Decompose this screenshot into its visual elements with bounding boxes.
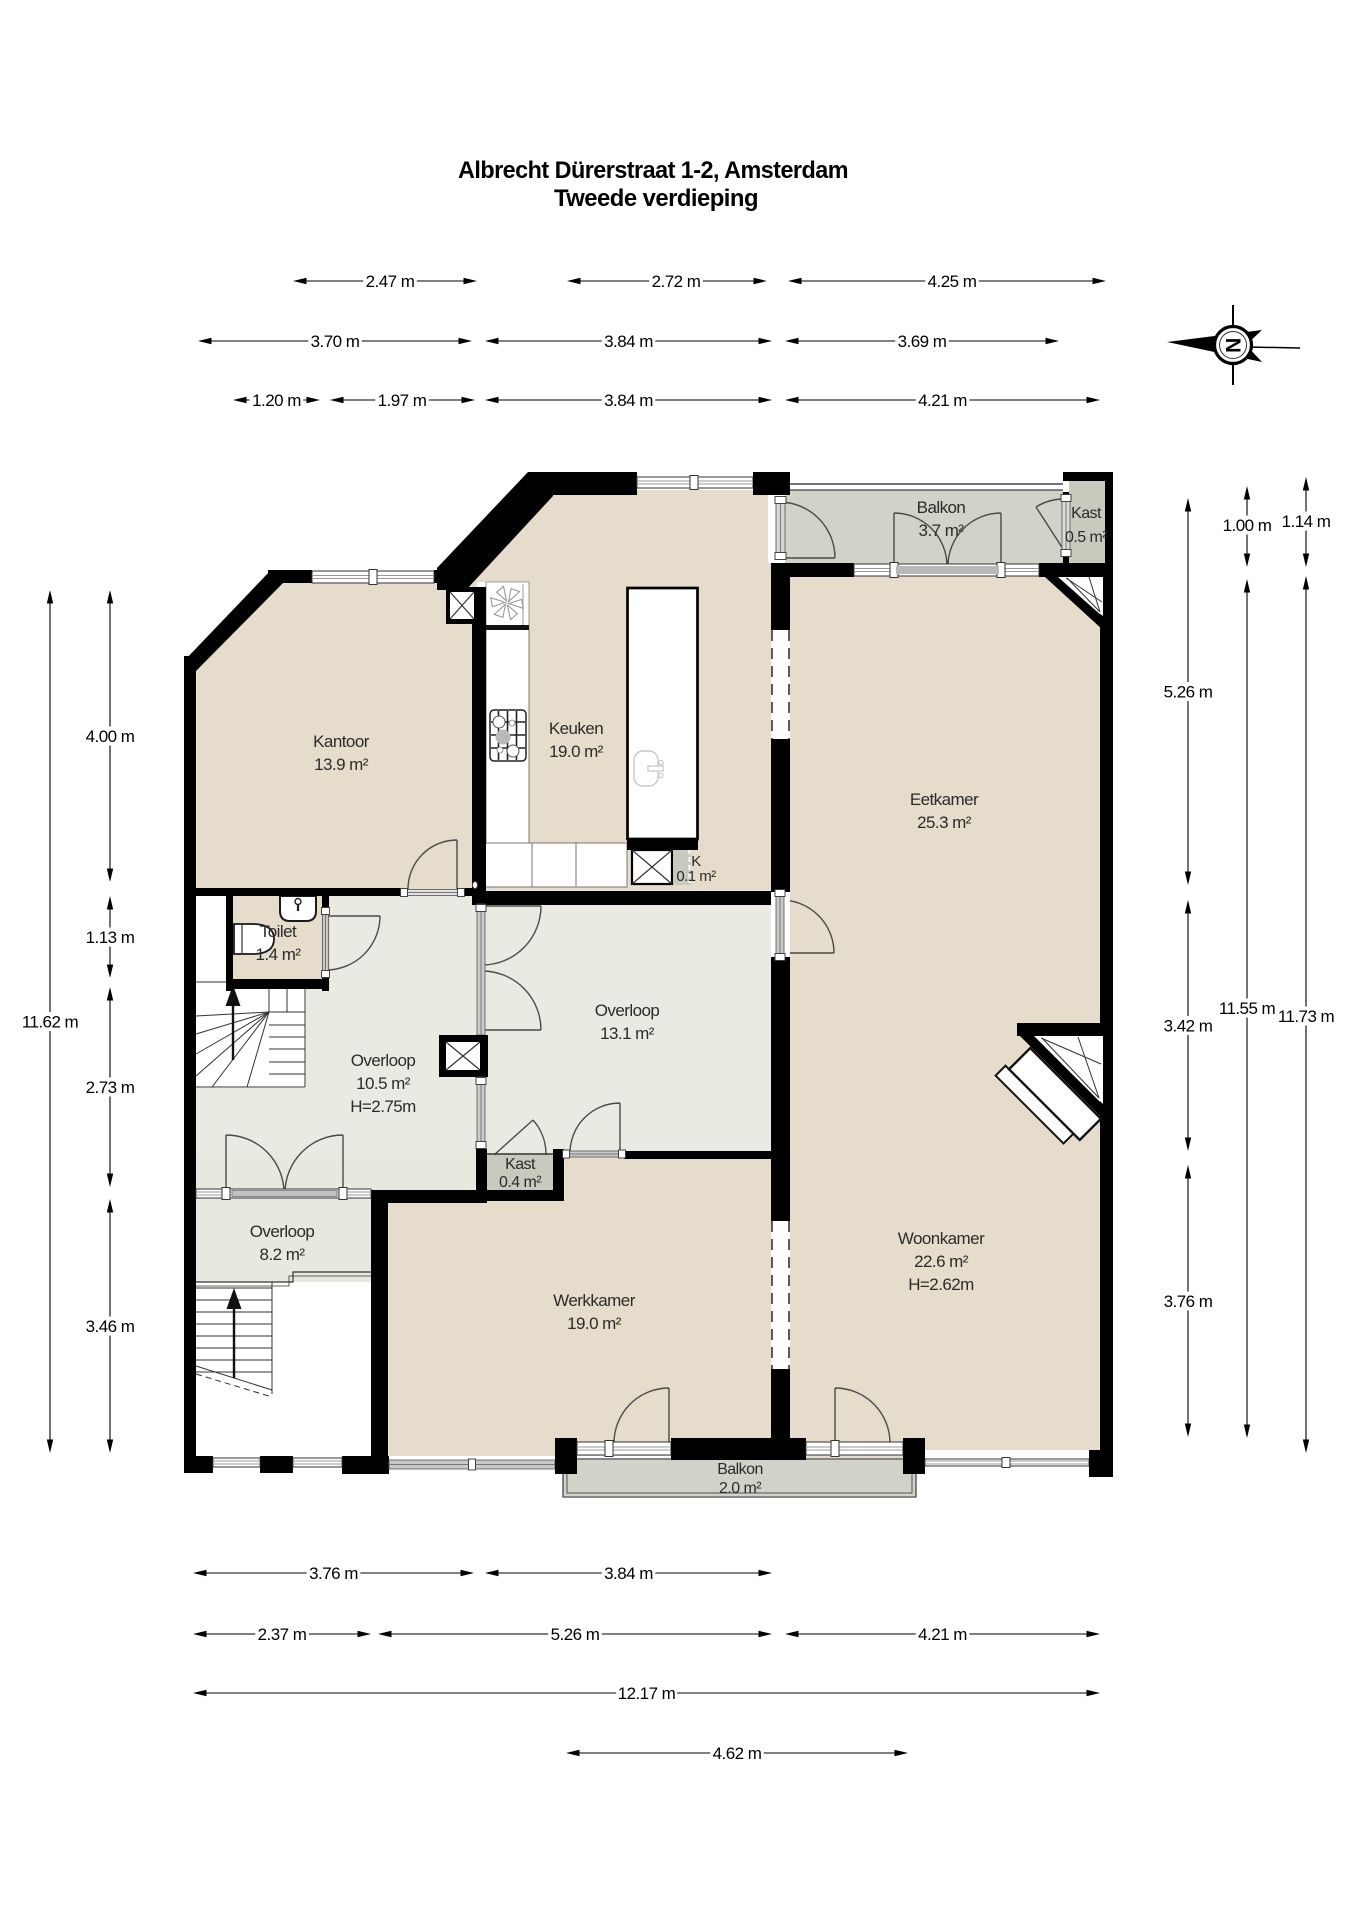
- svg-text:13.9 m²: 13.9 m²: [314, 755, 369, 774]
- svg-text:25.3 m²: 25.3 m²: [917, 813, 972, 832]
- svg-text:Werkkamer: Werkkamer: [553, 1291, 636, 1310]
- svg-text:4.21 m: 4.21 m: [918, 391, 967, 410]
- svg-text:3.70 m: 3.70 m: [311, 332, 360, 351]
- svg-text:4.00 m: 4.00 m: [86, 727, 135, 746]
- svg-text:Balkon: Balkon: [717, 1461, 763, 1478]
- svg-text:Overloop: Overloop: [595, 1001, 660, 1020]
- svg-text:22.6 m²: 22.6 m²: [914, 1252, 969, 1271]
- svg-text:3.84 m: 3.84 m: [604, 332, 653, 351]
- svg-text:2.47 m: 2.47 m: [366, 272, 415, 291]
- svg-text:Balkon: Balkon: [917, 498, 966, 517]
- svg-text:0.4 m²: 0.4 m²: [499, 1174, 542, 1191]
- svg-text:5.26 m: 5.26 m: [1164, 683, 1213, 702]
- svg-text:Kast: Kast: [1071, 505, 1102, 522]
- svg-text:Eetkamer: Eetkamer: [910, 790, 979, 809]
- svg-text:3.76 m: 3.76 m: [1164, 1292, 1213, 1311]
- svg-text:0.1 m²: 0.1 m²: [676, 868, 716, 885]
- svg-text:11.73 m: 11.73 m: [1278, 1007, 1335, 1026]
- svg-text:19.0 m²: 19.0 m²: [549, 742, 604, 761]
- svg-text:2.37 m: 2.37 m: [258, 1625, 307, 1644]
- svg-text:Overloop: Overloop: [250, 1222, 315, 1241]
- svg-text:H=2.62m: H=2.62m: [908, 1275, 974, 1294]
- svg-text:3.42 m: 3.42 m: [1164, 1017, 1213, 1036]
- svg-text:0.5 m²: 0.5 m²: [1065, 529, 1108, 546]
- svg-text:10.5 m²: 10.5 m²: [356, 1074, 411, 1093]
- svg-text:19.0 m²: 19.0 m²: [567, 1314, 622, 1333]
- svg-text:Kast: Kast: [505, 1156, 536, 1173]
- svg-text:11.62 m: 11.62 m: [22, 1013, 79, 1032]
- svg-text:8.2 m²: 8.2 m²: [260, 1245, 306, 1264]
- svg-text:12.17 m: 12.17 m: [618, 1684, 676, 1703]
- svg-text:4.25 m: 4.25 m: [928, 272, 977, 291]
- svg-text:Woonkamer: Woonkamer: [898, 1229, 985, 1248]
- svg-text:1.4 m²: 1.4 m²: [256, 945, 302, 964]
- svg-text:Keuken: Keuken: [549, 719, 603, 738]
- svg-text:3.69 m: 3.69 m: [898, 332, 947, 351]
- svg-text:N: N: [1221, 338, 1244, 353]
- svg-text:H=2.75m: H=2.75m: [350, 1097, 416, 1116]
- svg-text:2.0 m²: 2.0 m²: [719, 1480, 762, 1497]
- svg-text:1.14 m: 1.14 m: [1282, 512, 1331, 531]
- svg-text:4.62 m: 4.62 m: [713, 1744, 762, 1763]
- svg-text:3.7 m²: 3.7 m²: [919, 521, 965, 540]
- svg-text:Toilet: Toilet: [260, 922, 297, 941]
- svg-text:2.73 m: 2.73 m: [86, 1078, 135, 1097]
- svg-text:3.84 m: 3.84 m: [604, 391, 653, 410]
- svg-text:Tweede verdieping: Tweede verdieping: [554, 185, 758, 212]
- svg-text:Kantoor: Kantoor: [313, 732, 370, 751]
- svg-text:3.46 m: 3.46 m: [86, 1317, 135, 1336]
- svg-text:5.26 m: 5.26 m: [551, 1625, 600, 1644]
- svg-text:1.00 m: 1.00 m: [1223, 516, 1272, 535]
- svg-text:4.21 m: 4.21 m: [918, 1625, 967, 1644]
- svg-text:Overloop: Overloop: [351, 1051, 416, 1070]
- svg-text:1.20 m: 1.20 m: [252, 391, 301, 410]
- svg-text:Albrecht Dürerstraat 1-2, Amst: Albrecht Dürerstraat 1-2, Amsterdam: [458, 157, 848, 184]
- svg-text:1.97 m: 1.97 m: [378, 391, 427, 410]
- svg-text:13.1 m²: 13.1 m²: [600, 1024, 655, 1043]
- svg-text:11.55 m: 11.55 m: [1219, 999, 1276, 1018]
- svg-text:2.72 m: 2.72 m: [652, 272, 701, 291]
- svg-text:1.13 m: 1.13 m: [86, 928, 135, 947]
- svg-text:3.84 m: 3.84 m: [604, 1564, 653, 1583]
- svg-text:3.76 m: 3.76 m: [309, 1564, 358, 1583]
